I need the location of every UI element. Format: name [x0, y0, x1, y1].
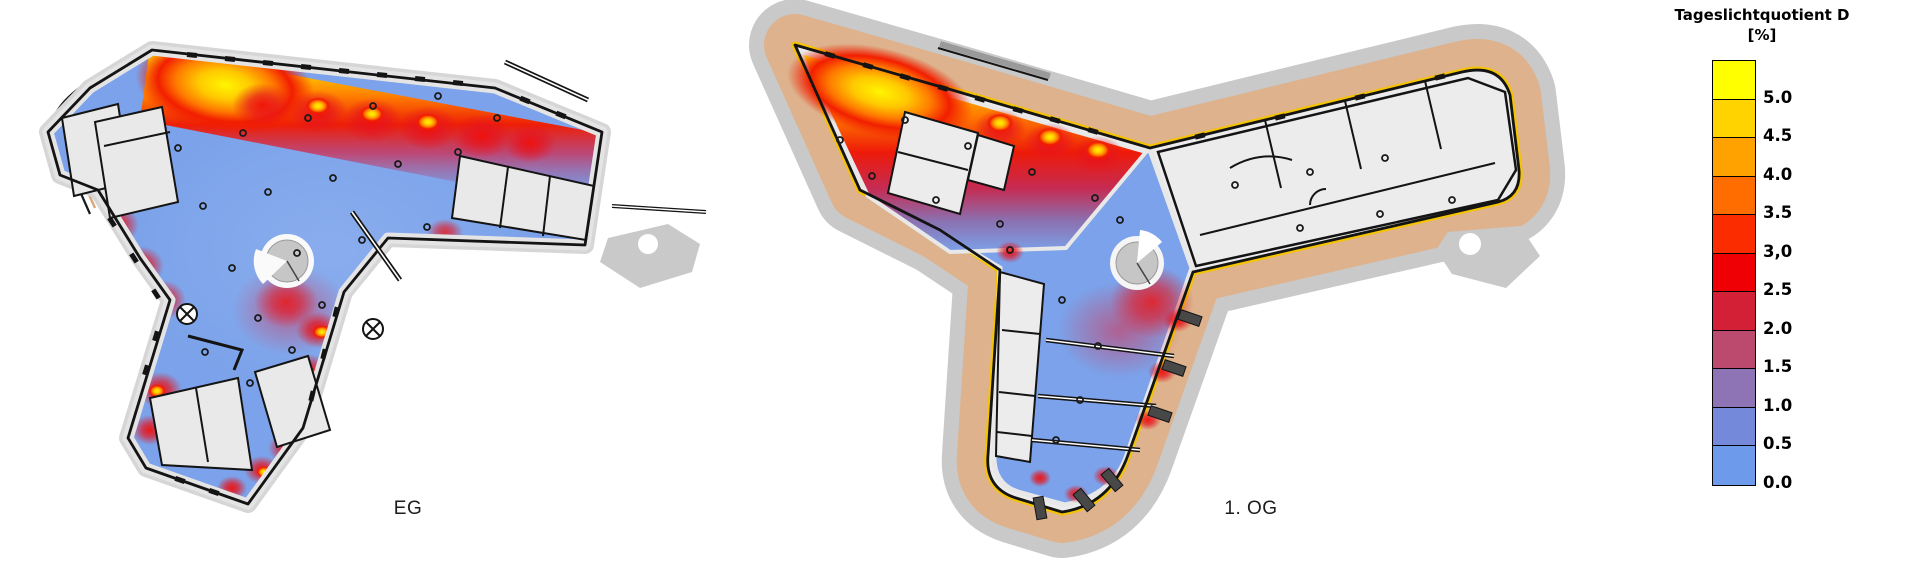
floor-plans-canvas	[0, 0, 1920, 575]
legend-tick-label: 2.5	[1763, 280, 1823, 299]
legend-tick-label: 1.0	[1763, 396, 1823, 415]
legend-tick-label: 1.5	[1763, 357, 1823, 376]
legend-tick-label: 3.5	[1763, 203, 1823, 222]
legend-swatch	[1713, 61, 1755, 100]
plan-label-og: 1. OG	[1191, 498, 1311, 520]
daylight-simulation-sheet: EG 1. OG Tageslichtquotient D [%] 5.04.5…	[0, 0, 1920, 575]
legend-swatch	[1713, 331, 1755, 370]
legend-tick-label: 4.0	[1763, 165, 1823, 184]
legend-swatch	[1713, 369, 1755, 408]
floor-plan-og	[777, 26, 1540, 519]
legend: Tageslichtquotient D [%] 5.04.54.03.53,0…	[1655, 4, 1869, 570]
legend-tick-label: 2.0	[1763, 319, 1823, 338]
legend-swatch	[1713, 100, 1755, 139]
og-entrance	[1436, 226, 1540, 288]
legend-tick-label: 5.0	[1763, 88, 1823, 107]
eg-heatmap	[30, 25, 650, 530]
legend-swatch	[1713, 138, 1755, 177]
legend-unit: [%]	[1655, 26, 1869, 44]
legend-tick-label: 0.5	[1763, 434, 1823, 453]
legend-tick-label: 0.0	[1763, 473, 1823, 492]
eg-entrance-arrow	[600, 224, 700, 288]
legend-tick-label: 3,0	[1763, 242, 1823, 261]
legend-swatch	[1713, 215, 1755, 254]
legend-swatch	[1713, 254, 1755, 293]
legend-swatch	[1713, 292, 1755, 331]
legend-swatch	[1713, 177, 1755, 216]
plan-label-eg: EG	[348, 498, 468, 520]
legend-color-bar	[1712, 60, 1756, 486]
floor-plan-eg	[30, 25, 706, 530]
legend-swatch	[1713, 446, 1755, 485]
legend-title: Tageslichtquotient D	[1655, 6, 1869, 24]
legend-swatch	[1713, 408, 1755, 447]
legend-tick-label: 4.5	[1763, 126, 1823, 145]
eg-entrance	[600, 206, 706, 288]
og-entrance-arrow	[1436, 226, 1540, 288]
